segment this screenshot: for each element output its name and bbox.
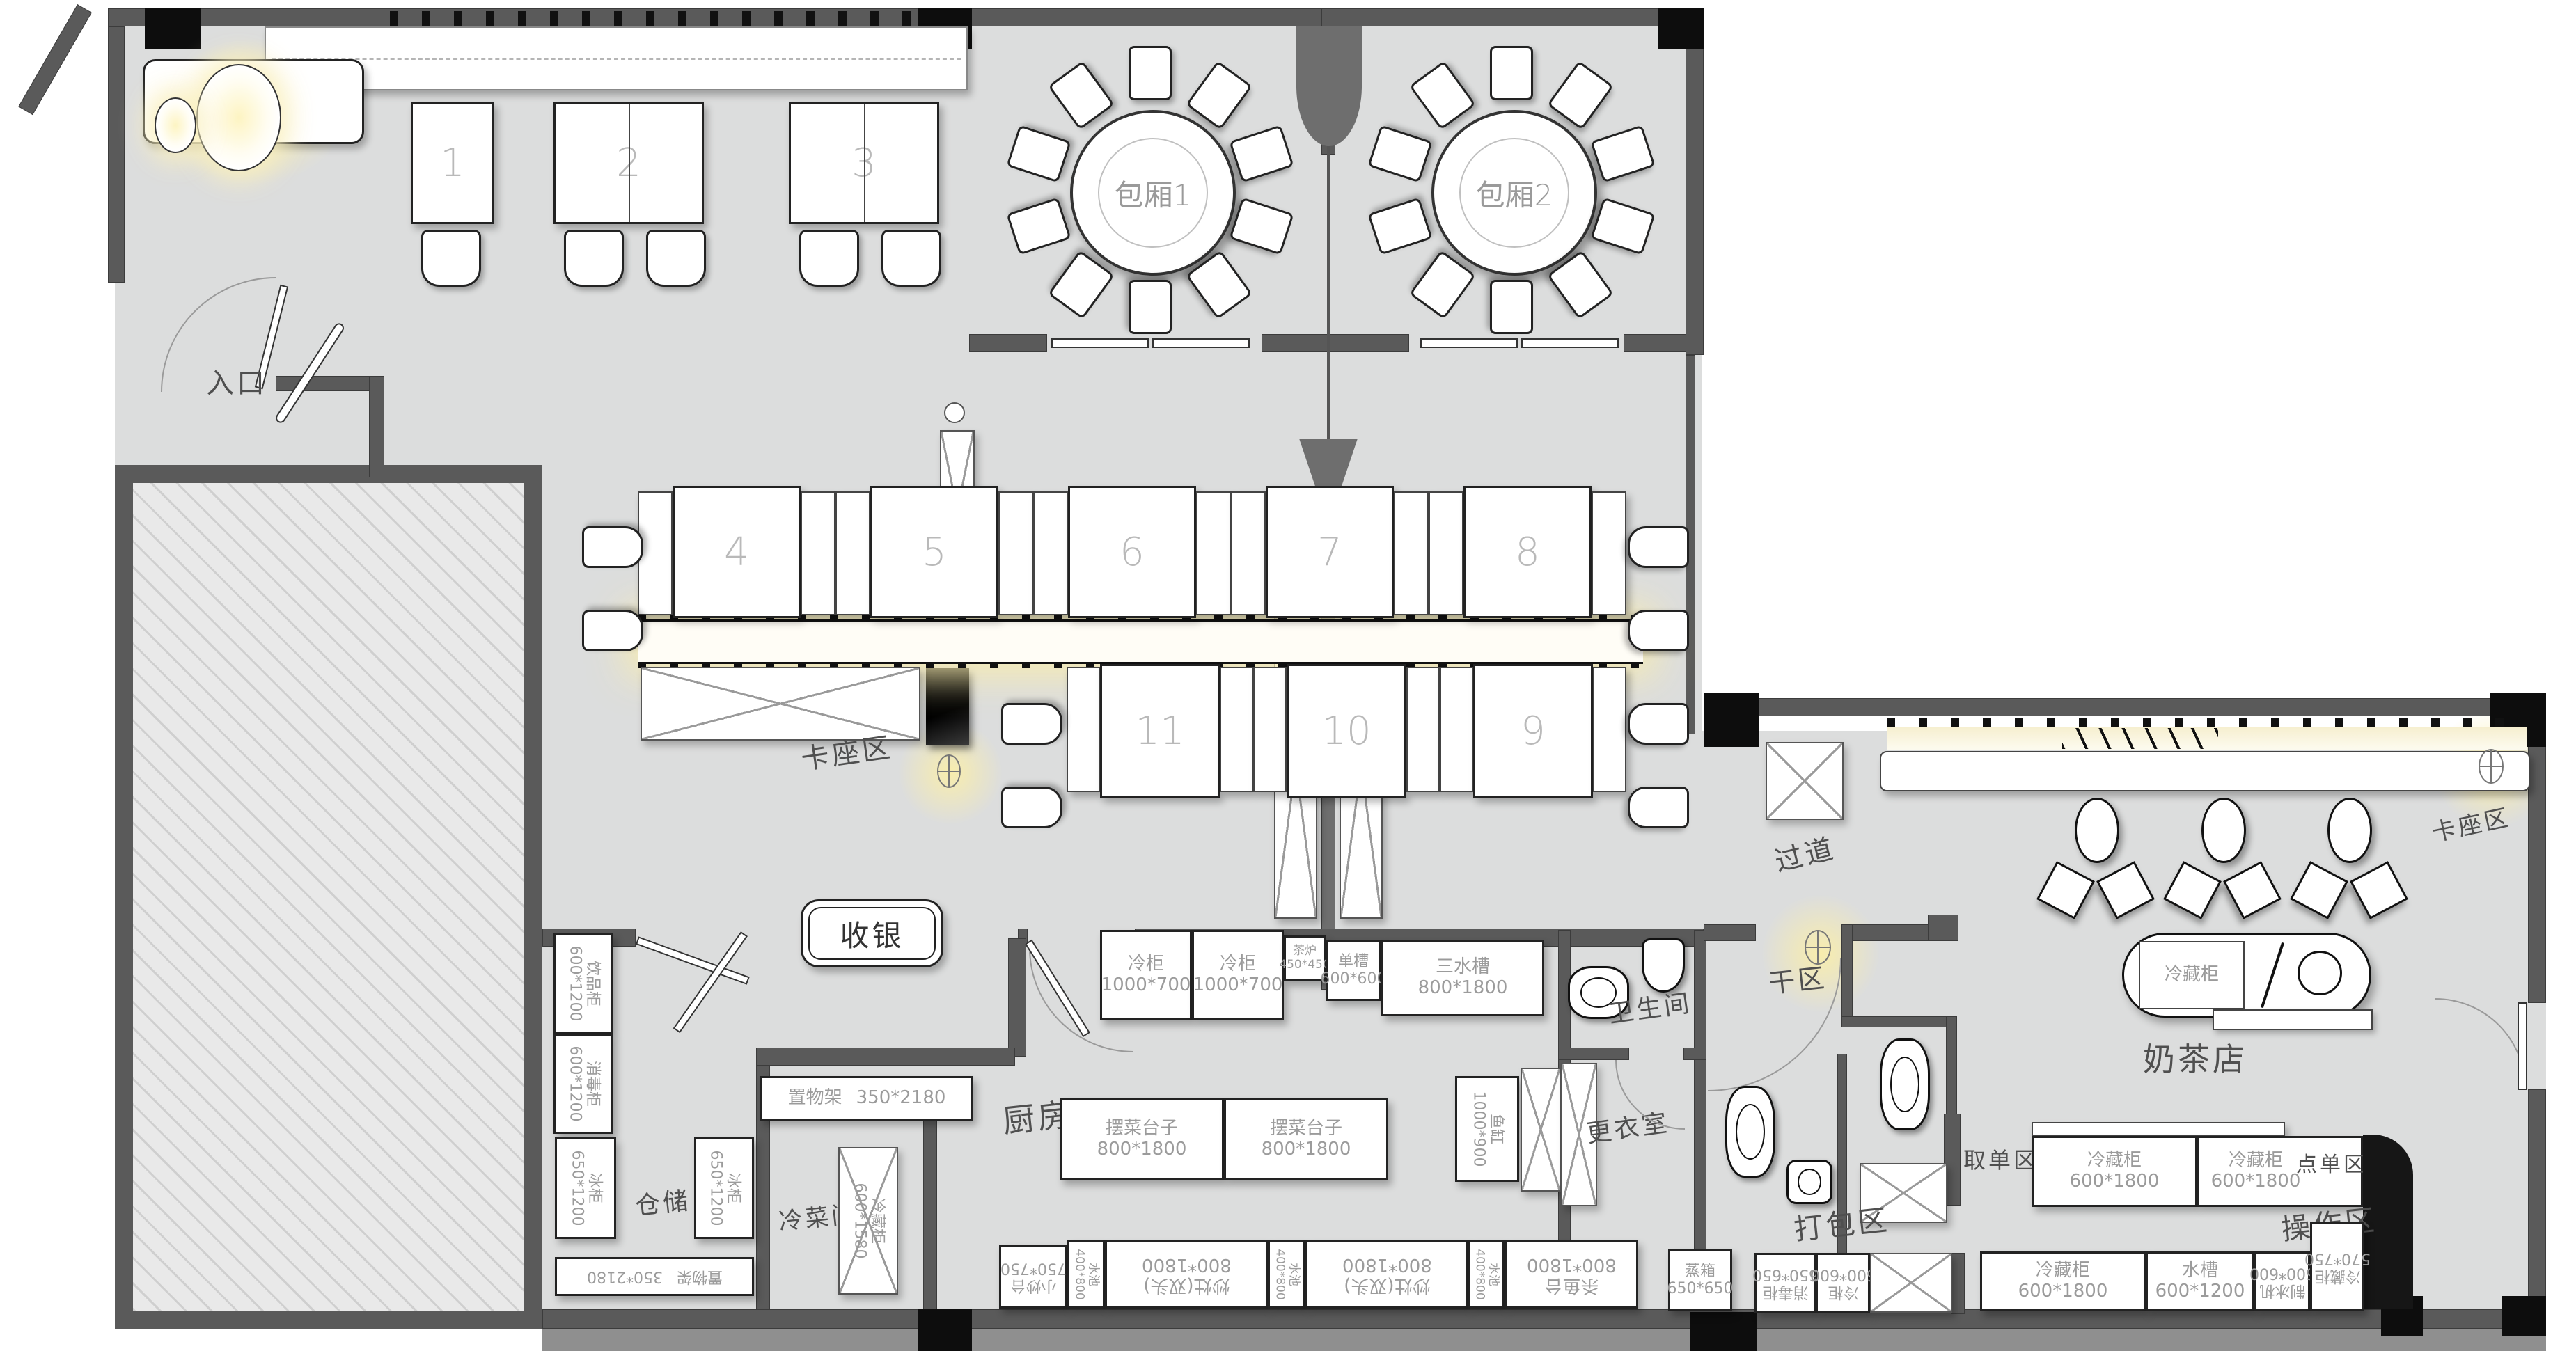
table-number: 7 bbox=[1317, 530, 1342, 575]
fish-tank-stand bbox=[1521, 1068, 1561, 1192]
booth-bench[interactable] bbox=[1231, 491, 1266, 615]
table-2[interactable]: 2 bbox=[553, 102, 704, 224]
squat-toilet bbox=[1880, 1038, 1930, 1130]
booth-bench[interactable] bbox=[1429, 491, 1463, 615]
equip-fridge-counter: 冷藏柜 bbox=[2139, 941, 2245, 1009]
curtain-line bbox=[1327, 146, 1330, 439]
table-number: 11 bbox=[1135, 709, 1184, 754]
booth-spine-bench bbox=[638, 619, 1643, 664]
chair[interactable] bbox=[1001, 787, 1062, 828]
column bbox=[1658, 8, 1704, 49]
wing-bench[interactable] bbox=[1880, 751, 2530, 791]
oval-table[interactable] bbox=[2201, 798, 2246, 863]
equip-sink-strip-c: 水池400*800 bbox=[1468, 1240, 1505, 1309]
chair[interactable] bbox=[1129, 46, 1172, 100]
chair[interactable] bbox=[564, 230, 624, 287]
booth-bench[interactable] bbox=[1440, 667, 1473, 792]
equip-ice-maker: 制冰机600*600 bbox=[2254, 1251, 2310, 1311]
storage-label: 仓储 bbox=[634, 1180, 693, 1222]
cashier-stand[interactable]: 收银 bbox=[801, 899, 943, 967]
chair[interactable] bbox=[1001, 703, 1062, 745]
equip-triple-sink: 三水槽800*1800 bbox=[1381, 940, 1544, 1016]
equip-freezer-a: 冰柜650*1200 bbox=[555, 1137, 616, 1239]
table-11[interactable]: 11 bbox=[1100, 664, 1220, 798]
booth-bench[interactable] bbox=[1067, 667, 1100, 792]
table-5[interactable]: 5 bbox=[870, 486, 998, 618]
equip-plating-table-b: 摆菜台子800*1800 bbox=[1224, 1098, 1388, 1180]
milk-tea-label: 奶茶店 bbox=[2143, 1034, 2247, 1080]
table-number: 10 bbox=[1321, 709, 1371, 754]
counter-step bbox=[2213, 1009, 2373, 1030]
table-6[interactable]: 6 bbox=[1068, 486, 1196, 618]
table-3[interactable]: 3 bbox=[789, 102, 939, 224]
booth-bench[interactable] bbox=[1394, 491, 1429, 615]
entrance-label: 入口 bbox=[206, 361, 267, 401]
ceiling-light bbox=[196, 64, 281, 171]
equip-fish-station: 杀鱼台800*1800 bbox=[1505, 1240, 1638, 1309]
booth-bench[interactable] bbox=[835, 491, 870, 615]
equip-fish-tank: 鱼缸1000*900 bbox=[1455, 1076, 1519, 1182]
milk-tea-door-leaf[interactable] bbox=[2518, 1002, 2527, 1090]
equip-disinfect-cabinet-storage: 消毒柜600*1200 bbox=[553, 1034, 613, 1134]
private-room-1-table[interactable]: 包厢1 bbox=[1070, 110, 1236, 276]
wing-cabinet bbox=[1766, 742, 1844, 820]
private-room-label: 包厢2 bbox=[1476, 172, 1553, 214]
equip-drink-cabinet: 饮品柜600*1200 bbox=[553, 933, 613, 1034]
table-4[interactable]: 4 bbox=[673, 486, 801, 618]
chair[interactable] bbox=[582, 610, 643, 651]
wing-light-track bbox=[1887, 718, 2527, 727]
wall-private-right bbox=[1686, 8, 1704, 355]
table-divider bbox=[629, 104, 630, 222]
equip-tea-stove: 茶炉450*450 bbox=[1284, 935, 1326, 981]
equip-disinfect-cabinet-pack: 消毒柜650*650 bbox=[1754, 1253, 1816, 1313]
column bbox=[1704, 693, 1759, 747]
wall bbox=[969, 334, 1047, 352]
private-room-label: 包厢1 bbox=[1115, 172, 1192, 214]
column bbox=[2502, 1296, 2546, 1336]
chair[interactable] bbox=[799, 230, 859, 287]
chair[interactable] bbox=[582, 526, 643, 568]
booth-bench[interactable] bbox=[1253, 667, 1287, 792]
equip-shelf-storage: 置物架350*2180 bbox=[555, 1257, 754, 1296]
booth-bench[interactable] bbox=[998, 491, 1033, 615]
chair[interactable] bbox=[1628, 610, 1689, 651]
sliding-door[interactable] bbox=[1051, 338, 1149, 348]
table-number: 6 bbox=[1120, 530, 1145, 575]
chair[interactable] bbox=[1628, 787, 1689, 828]
pickup-area-label: 取单区 bbox=[1963, 1143, 2039, 1175]
equip-wok-stove-a: 炒灶(双头)800*1800 bbox=[1105, 1240, 1268, 1309]
sliding-door[interactable] bbox=[1420, 338, 1518, 348]
booth-bench[interactable] bbox=[801, 491, 835, 615]
wall-wing-right bbox=[2528, 716, 2546, 1003]
chair[interactable] bbox=[421, 230, 481, 287]
equip-sink-strip-a: 水池400*800 bbox=[1067, 1240, 1105, 1309]
pickup-counter-top bbox=[2032, 1122, 2285, 1136]
table-number: 5 bbox=[922, 530, 947, 575]
equip-fridge-corner: 冷藏柜570*750 bbox=[2310, 1222, 2364, 1311]
wall bbox=[1683, 1048, 1706, 1060]
chair[interactable] bbox=[646, 230, 706, 287]
table-divider bbox=[864, 104, 865, 222]
light-track bbox=[390, 11, 926, 26]
booth-bench[interactable] bbox=[1406, 667, 1440, 792]
hatched-storage-area bbox=[115, 465, 542, 1329]
table-8[interactable]: 8 bbox=[1463, 486, 1592, 618]
table-9[interactable]: 9 bbox=[1473, 664, 1593, 798]
order-area-label: 点单区 bbox=[2296, 1147, 2367, 1178]
booth-bench[interactable] bbox=[1196, 491, 1231, 615]
wall bbox=[1704, 924, 1756, 941]
column bbox=[145, 8, 201, 49]
equip-cold-cab-colddish: 冷藏柜600*1580 bbox=[838, 1147, 898, 1295]
chair[interactable] bbox=[1628, 703, 1689, 745]
sliding-door[interactable] bbox=[1152, 338, 1250, 348]
wall bbox=[1951, 1253, 1965, 1314]
wall-vestibule bbox=[276, 376, 384, 391]
equip-fridge-operation: 冷藏柜600*1800 bbox=[1980, 1251, 2146, 1311]
booth-bench[interactable] bbox=[1220, 667, 1253, 792]
column bbox=[1690, 1312, 1757, 1351]
downlight-icon bbox=[937, 754, 961, 788]
wall bbox=[18, 4, 92, 115]
wall bbox=[1262, 334, 1409, 352]
hostess-stand bbox=[926, 668, 969, 745]
equip-cold-cabinet-a: 冷柜1000*700 bbox=[1100, 930, 1192, 1020]
curtain-bulb bbox=[1296, 26, 1362, 146]
private-room-2-table[interactable]: 包厢2 bbox=[1431, 110, 1597, 276]
booth-bench[interactable] bbox=[1593, 667, 1626, 792]
table-number: 8 bbox=[1515, 530, 1540, 575]
wall bbox=[108, 26, 125, 283]
wing-light bbox=[2479, 749, 2504, 784]
restaurant-floor-plan: 入口 1 2 3 包厢1 包厢2 卡座区 4 5 6 7 8 bbox=[0, 0, 2576, 1351]
chair[interactable] bbox=[1490, 46, 1533, 100]
equip-single-sink: 单槽600*600 bbox=[1326, 940, 1381, 1001]
storefront-dashline bbox=[272, 58, 961, 60]
equip-plating-table-a: 摆菜台子800*1800 bbox=[1060, 1098, 1224, 1180]
wall bbox=[1624, 334, 1686, 352]
table-number: 4 bbox=[724, 530, 749, 575]
hand-sink bbox=[1786, 1160, 1832, 1204]
wall bbox=[1841, 924, 1929, 941]
wall bbox=[1008, 938, 1026, 1057]
equip-sink-operation: 水槽600*1200 bbox=[2146, 1251, 2254, 1311]
wall bbox=[756, 1048, 1015, 1066]
chair[interactable] bbox=[1628, 526, 1689, 568]
equip-wok-stove-b: 炒灶(双头)800*1800 bbox=[1305, 1240, 1468, 1309]
packing-worktop bbox=[1870, 1253, 1952, 1313]
wall bbox=[1841, 924, 1853, 1026]
equip-cold-cabinet-b: 冷柜1000*700 bbox=[1192, 930, 1284, 1020]
oval-table[interactable] bbox=[2327, 798, 2372, 863]
wing-louver bbox=[2062, 728, 2218, 749]
table-1[interactable]: 1 bbox=[411, 102, 494, 224]
equip-steam-box: 蒸箱650*650 bbox=[1668, 1249, 1732, 1311]
wall-vestibule bbox=[369, 376, 384, 477]
ceiling-light bbox=[155, 97, 196, 153]
chair[interactable] bbox=[1490, 280, 1533, 334]
booth-bench[interactable] bbox=[1592, 491, 1626, 615]
equip-sink-strip-b: 水池400*800 bbox=[1268, 1240, 1305, 1309]
toilet-bowl bbox=[1890, 1057, 1919, 1113]
table-7[interactable]: 7 bbox=[1266, 486, 1394, 618]
cashier-inner bbox=[808, 907, 936, 960]
wall bbox=[1841, 1016, 1957, 1027]
oval-table[interactable] bbox=[2075, 798, 2119, 863]
column bbox=[918, 1309, 972, 1351]
table-number: 9 bbox=[1521, 709, 1546, 754]
equip-shelf-kitchen: 置物架350*2180 bbox=[760, 1076, 973, 1121]
chair[interactable] bbox=[1129, 280, 1172, 334]
wall-bottom bbox=[542, 1309, 2546, 1329]
wall-fixture bbox=[944, 402, 965, 423]
equip-cold-cab-small: 冷柜600*600 bbox=[1816, 1253, 1870, 1313]
squat-toilet bbox=[1725, 1086, 1775, 1178]
counter-sink bbox=[2298, 951, 2342, 995]
equip-pickup-fridge-a: 冷藏柜600*1800 bbox=[2032, 1136, 2197, 1207]
toilet-bowl bbox=[1736, 1104, 1765, 1160]
wall-wing-top bbox=[1704, 698, 2546, 716]
table-number: 1 bbox=[440, 141, 465, 186]
table-10[interactable]: 10 bbox=[1287, 664, 1406, 798]
chair[interactable] bbox=[881, 230, 941, 287]
equip-stirfry-small: 小炒台750*750 bbox=[999, 1245, 1067, 1309]
booth-bench[interactable] bbox=[1033, 491, 1068, 615]
wall bbox=[1558, 1048, 1629, 1060]
equip-freezer-b: 冰柜650*1200 bbox=[694, 1137, 754, 1239]
wall bbox=[1928, 915, 1958, 941]
sink-basin bbox=[1798, 1169, 1821, 1194]
wall-wing-right bbox=[2528, 1089, 2546, 1313]
exterior-band bbox=[542, 1329, 2546, 1351]
sliding-door[interactable] bbox=[1521, 338, 1619, 348]
